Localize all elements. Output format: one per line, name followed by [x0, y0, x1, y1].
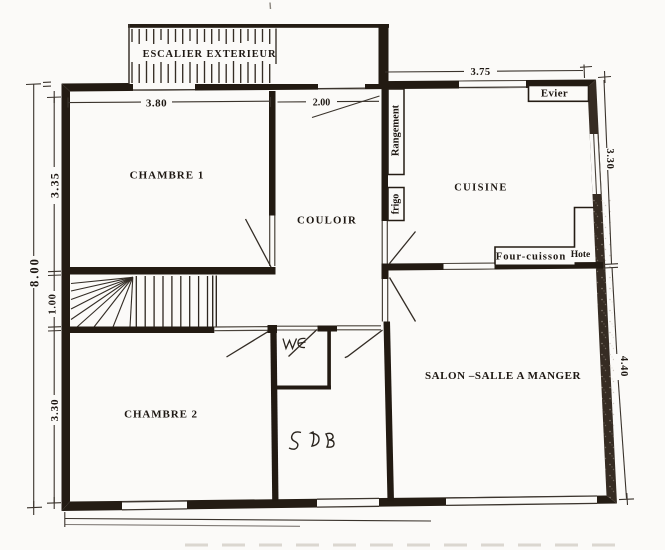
svg-text:SALON –SALLE A MANGER: SALON –SALLE A MANGER	[425, 370, 582, 382]
svg-text:CHAMBRE 1: CHAMBRE 1	[130, 170, 205, 182]
svg-text:Evier: Evier	[541, 88, 568, 100]
svg-text:3.80: 3.80	[146, 98, 167, 110]
svg-text:Hote: Hote	[571, 250, 591, 260]
svg-text:2.00: 2.00	[313, 98, 331, 109]
svg-text:4.40: 4.40	[618, 356, 629, 377]
svg-text:CHAMBRE 2: CHAMBRE 2	[124, 409, 198, 421]
svg-text:8.00: 8.00	[28, 257, 42, 287]
svg-text:3.30: 3.30	[49, 399, 61, 422]
svg-text:Rangement: Rangement	[391, 104, 402, 156]
svg-text:ESCALIER EXTERIEUR: ESCALIER EXTERIEUR	[143, 49, 277, 60]
svg-text:1.00: 1.00	[48, 293, 59, 314]
svg-text:3.35: 3.35	[48, 172, 62, 198]
svg-text:Four-cuisson: Four-cuisson	[496, 252, 566, 263]
svg-text:frigo: frigo	[391, 194, 402, 215]
svg-text:3.30: 3.30	[604, 148, 615, 169]
svg-text:CUISINE: CUISINE	[454, 183, 508, 194]
svg-text:COULOIR: COULOIR	[297, 215, 357, 227]
svg-text:3.75: 3.75	[471, 67, 491, 78]
